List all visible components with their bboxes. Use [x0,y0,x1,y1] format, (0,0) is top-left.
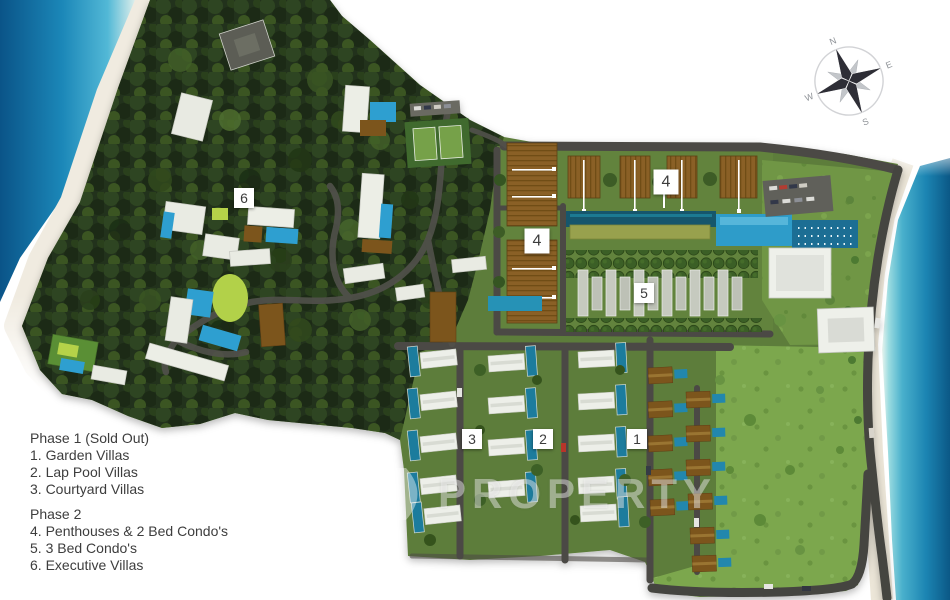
compass-east-label: E [884,59,893,71]
site-plan-image: PROPERTY 6 4 4 5 3 2 1 Phase 1 (Sold Out… [0,0,950,600]
compass-south-label: S [861,116,870,126]
tree-row [566,318,762,332]
clubhouse-roof [570,225,710,239]
legend-phase2: Phase 2 4. Penthouses & 2 Bed Condo's 5.… [30,506,228,574]
tennis-court [404,118,471,168]
compass-major-points [804,36,894,126]
legend-item: 2. Lap Pool Villas [30,464,228,481]
legend-phase2-title: Phase 2 [30,506,228,523]
compass-north-label: N [828,36,838,47]
legend-item: 4. Penthouses & 2 Bed Condo's [30,523,228,540]
parking-lot [763,175,834,217]
pool [370,102,396,122]
legend-phase1-title: Phase 1 (Sold Out) [30,430,228,447]
map-marker-6[interactable]: 6 [234,188,254,208]
map-marker-2[interactable]: 2 [533,429,553,449]
compass-rose-icon: N E S W [804,36,894,126]
legend-item: 3. Courtyard Villas [30,481,228,498]
legend-item: 6. Executive Villas [30,557,228,574]
map-marker-4-west[interactable]: 4 [525,229,550,254]
legend-phase1: Phase 1 (Sold Out) 1. Garden Villas 2. L… [30,430,228,498]
legend: Phase 1 (Sold Out) 1. Garden Villas 2. L… [30,430,228,582]
compass-west-label: W [804,91,815,104]
map-marker-4-north[interactable]: 4 [654,170,679,195]
map-marker-3[interactable]: 3 [462,429,482,449]
legend-item: 5. 3 Bed Condo's [30,540,228,557]
marker-leader-line [663,193,665,208]
map-marker-5[interactable]: 5 [634,283,654,303]
legend-item: 1. Garden Villas [30,447,228,464]
map-marker-1[interactable]: 1 [627,429,647,449]
